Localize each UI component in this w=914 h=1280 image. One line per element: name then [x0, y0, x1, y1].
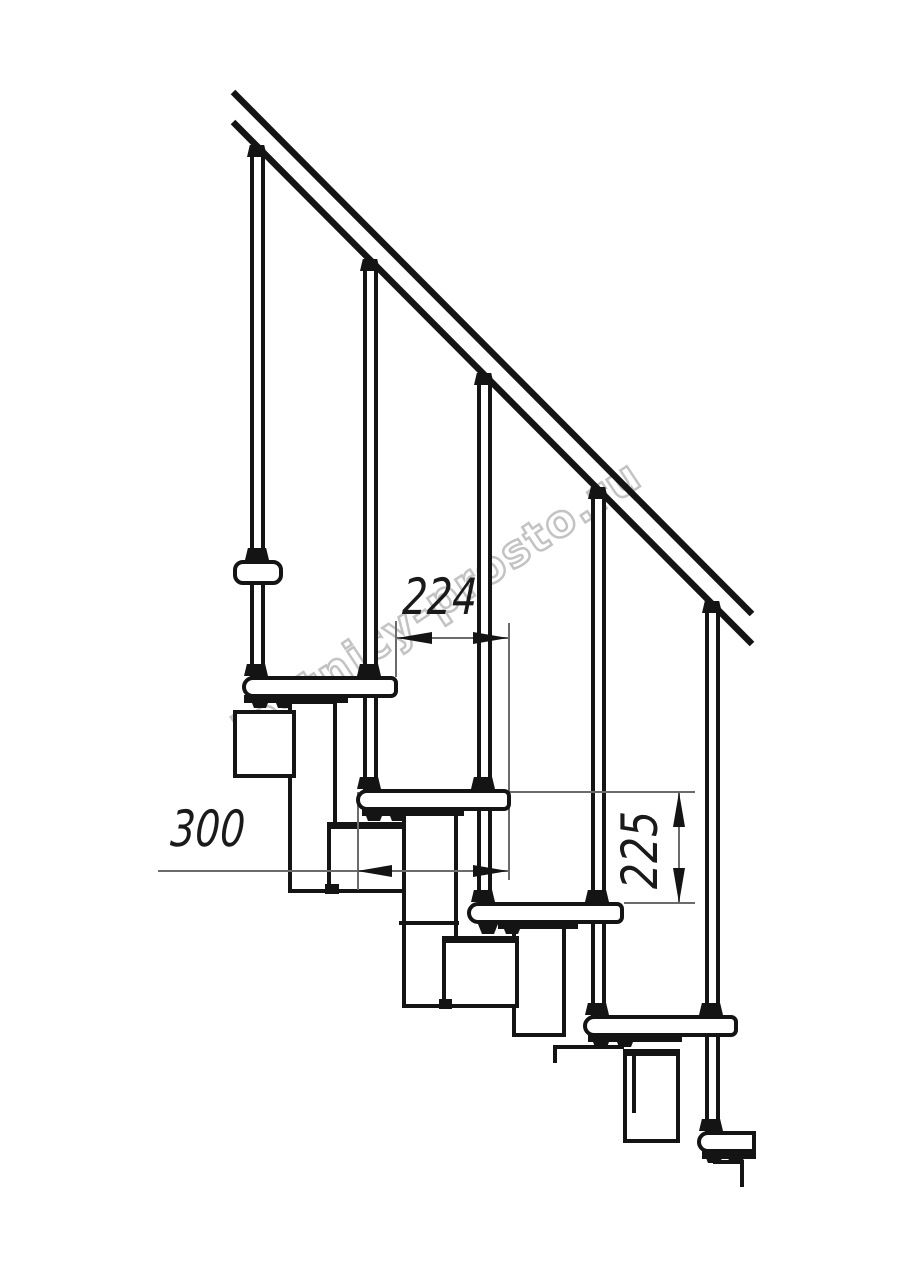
- support-plate-3-lug: [439, 999, 452, 1009]
- dim-224-300-ext-right: [508, 623, 510, 880]
- plate-4-connection-tick: [553, 1045, 557, 1063]
- lower-module-cut-line-v: [740, 1160, 744, 1187]
- baluster-4: [591, 496, 606, 1018]
- dim-225-arrow-down: [673, 868, 685, 903]
- plate-4-connection-line: [553, 1045, 624, 1049]
- dim-300-arrow-right: [473, 865, 508, 877]
- support-column-2-joint-line: [399, 921, 459, 925]
- staircase-drawing: lestnicy-prosto.ru: [0, 0, 914, 1280]
- baluster-3-cap: [474, 373, 494, 385]
- baluster-1-cap: [247, 145, 267, 157]
- tread-end-view-upper-flight: [233, 560, 283, 585]
- baluster-1: [250, 154, 265, 678]
- baluster-1-collar: [245, 548, 269, 560]
- baluster-4-collar: [585, 1003, 609, 1015]
- baluster-4-cap: [588, 487, 608, 499]
- baluster-5: [705, 610, 720, 1133]
- baluster-5-cap: [702, 601, 722, 613]
- dim-224-ext-left: [395, 621, 397, 677]
- baluster-5-collar: [699, 1003, 723, 1015]
- baluster-4-collar: [585, 890, 609, 902]
- baluster-5-collar: [699, 1119, 723, 1131]
- support-plate-2-lug: [325, 884, 339, 894]
- support-plate-2: [327, 822, 406, 893]
- support-plate-1: [233, 710, 296, 778]
- support-plate-3: [442, 936, 519, 1008]
- baluster-2: [363, 268, 378, 792]
- support-plate-4-inner-edge: [632, 1053, 636, 1113]
- support-column-3: [512, 923, 566, 1037]
- dim-225-ext-top: [509, 791, 695, 793]
- baluster-3-collar: [471, 777, 495, 789]
- baluster-2-collar: [357, 777, 381, 789]
- dim-label-tread-depth: 300: [169, 804, 246, 854]
- dim-224-arrow-left: [397, 632, 432, 644]
- baluster-3-collar: [471, 890, 495, 902]
- dim-label-riser-height: 225: [617, 805, 663, 895]
- dim-300-arrow-left: [357, 865, 392, 877]
- dim-225-arrow-up: [673, 792, 685, 827]
- dim-label-tread-run: 224: [401, 572, 478, 622]
- handrail: [0, 0, 914, 1280]
- dim-300-line: [158, 870, 509, 872]
- baluster-1-collar: [244, 664, 268, 676]
- baluster-2-cap: [360, 259, 380, 271]
- dim-224-arrow-right: [473, 632, 508, 644]
- baluster-2-collar: [357, 664, 381, 676]
- tread-2-foot: [364, 811, 384, 821]
- tread-3-foot: [478, 924, 498, 934]
